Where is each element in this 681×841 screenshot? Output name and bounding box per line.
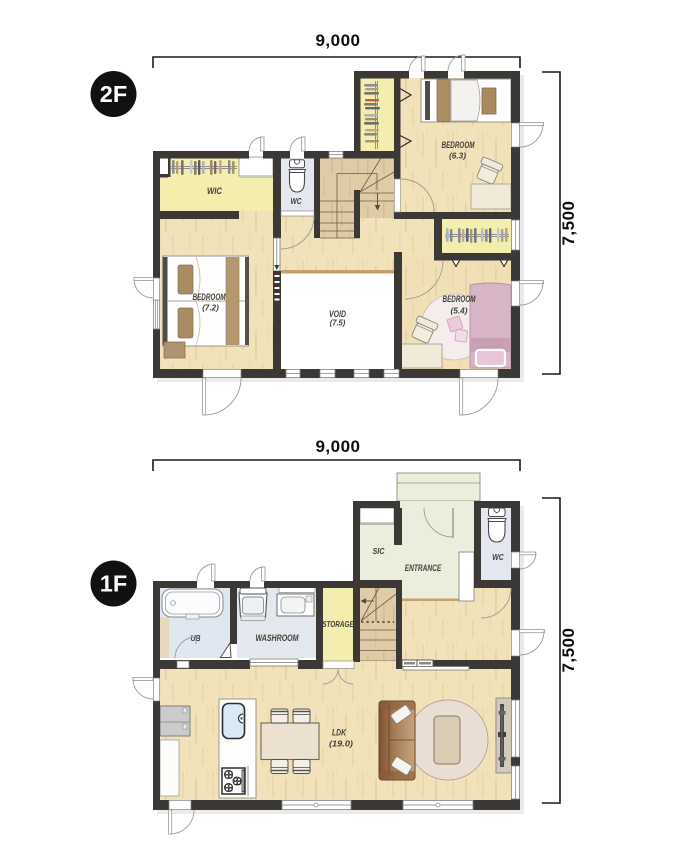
svg-text:STORAGE: STORAGE — [322, 620, 354, 629]
svg-text:7,500: 7,500 — [559, 627, 578, 672]
svg-text:(7.2): (7.2) — [202, 303, 219, 313]
svg-text:7,500: 7,500 — [559, 200, 578, 245]
svg-text:SIC: SIC — [373, 547, 385, 556]
svg-text:9,000: 9,000 — [315, 437, 360, 456]
svg-text:BEDROOM: BEDROOM — [443, 294, 476, 304]
svg-text:WC: WC — [492, 553, 504, 562]
svg-text:(6.3): (6.3) — [449, 151, 466, 161]
svg-text:LDK: LDK — [332, 728, 347, 738]
svg-text:WIC: WIC — [207, 186, 222, 196]
svg-text:WASHROOM: WASHROOM — [256, 633, 299, 643]
svg-text:(5.4): (5.4) — [451, 306, 468, 316]
svg-text:9,000: 9,000 — [315, 31, 360, 50]
svg-text:2F: 2F — [100, 81, 127, 107]
svg-text:BEDROOM: BEDROOM — [442, 140, 475, 150]
svg-text:(19.0): (19.0) — [329, 739, 353, 749]
svg-text:WC: WC — [291, 197, 302, 206]
svg-text:1F: 1F — [100, 571, 127, 597]
svg-text:(7.5): (7.5) — [330, 318, 346, 328]
svg-text:ENTRANCE: ENTRANCE — [405, 563, 442, 573]
svg-text:BEDROOM: BEDROOM — [193, 292, 226, 302]
